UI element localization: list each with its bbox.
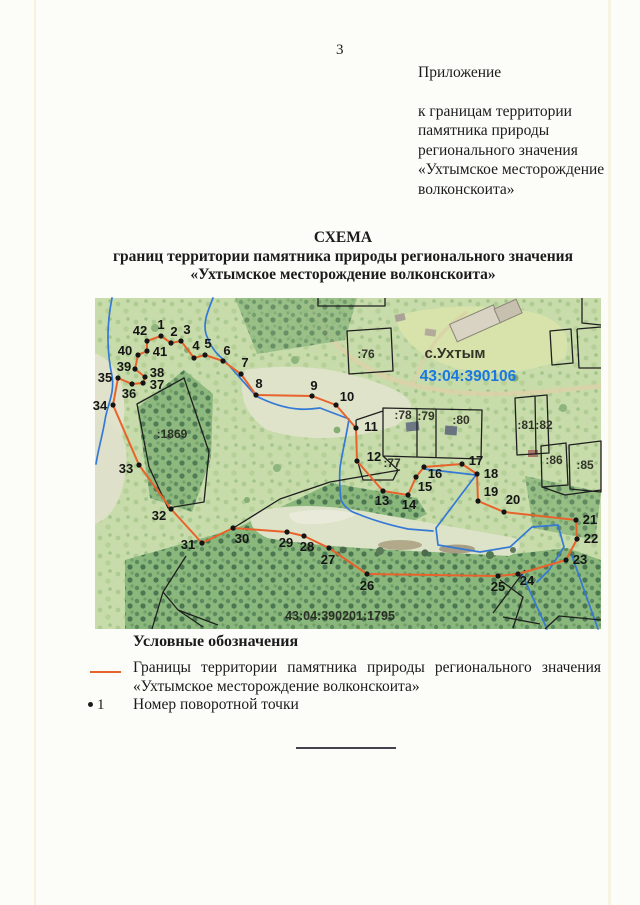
point-dot-icon bbox=[88, 702, 93, 707]
turning-point-dot bbox=[199, 540, 204, 545]
turning-point-number: 16 bbox=[428, 466, 442, 481]
document-page: 3 Приложение к границам территории памят… bbox=[0, 0, 640, 905]
turning-point-dot bbox=[501, 509, 506, 514]
turning-point-dot bbox=[110, 402, 115, 407]
turning-point-number: 29 bbox=[279, 535, 293, 550]
turning-point-number: 34 bbox=[93, 398, 108, 413]
turning-point-number: 25 bbox=[491, 579, 505, 594]
turning-point-dot bbox=[563, 557, 568, 562]
turning-point-number: 12 bbox=[367, 449, 381, 464]
turning-point-number: 31 bbox=[181, 537, 195, 552]
turning-point-dot bbox=[115, 375, 120, 380]
legend-point-number: 1 bbox=[97, 697, 105, 713]
turning-point-number: 6 bbox=[223, 343, 230, 358]
turning-point-number: 26 bbox=[360, 578, 374, 593]
turning-point-number: 19 bbox=[484, 484, 498, 499]
map-label: 43:04:390106 bbox=[420, 368, 517, 385]
turning-point-dot bbox=[421, 464, 426, 469]
turning-point-dot bbox=[142, 374, 147, 379]
turning-point-dot bbox=[301, 533, 306, 538]
turning-point-number: 14 bbox=[402, 497, 417, 512]
map-label: :85 bbox=[576, 458, 594, 472]
turning-point-dot bbox=[168, 506, 173, 511]
map-label: :81 bbox=[517, 418, 535, 432]
turning-point-number: 15 bbox=[418, 479, 432, 494]
turning-point-number: 22 bbox=[584, 531, 598, 546]
map-svg: с.Ухтым43:04:390106:76:78:79:80:81:82:86… bbox=[95, 298, 601, 629]
turning-point-number: 36 bbox=[122, 386, 136, 401]
appendix-line: к границам территории bbox=[418, 102, 618, 121]
turning-point-number: 3 bbox=[183, 322, 190, 337]
turning-point-number: 41 bbox=[153, 344, 167, 359]
legend-boundary-line-swatch bbox=[90, 671, 121, 673]
turning-point-number: 10 bbox=[340, 389, 354, 404]
turning-point-dot bbox=[158, 333, 163, 338]
turning-point-dot bbox=[178, 338, 183, 343]
turning-point-number: 8 bbox=[255, 376, 262, 391]
turning-point-dot bbox=[354, 458, 359, 463]
map-label: :82 bbox=[535, 418, 553, 432]
map-label: :79 bbox=[417, 409, 435, 423]
appendix-line: волконскоита» bbox=[418, 180, 618, 199]
appendix-line: памятника природы bbox=[418, 121, 618, 140]
turning-point-dot bbox=[253, 392, 258, 397]
turning-point-dot bbox=[309, 393, 314, 398]
turning-point-number: 17 bbox=[469, 453, 483, 468]
map-label: :80 bbox=[452, 413, 470, 427]
turning-point-dot bbox=[284, 529, 289, 534]
turning-point-number: 28 bbox=[300, 539, 314, 554]
turning-point-dot bbox=[202, 352, 207, 357]
turning-point-number: 7 bbox=[241, 355, 248, 370]
map-label: :78 bbox=[394, 408, 412, 422]
turning-point-dot bbox=[168, 340, 173, 345]
map-label: :77 bbox=[383, 456, 401, 470]
turning-point-number: 21 bbox=[583, 512, 597, 527]
turning-point-number: 38 bbox=[150, 365, 164, 380]
turning-point-number: 40 bbox=[118, 343, 132, 358]
turning-point-dot bbox=[574, 536, 579, 541]
turning-point-dot bbox=[573, 517, 578, 522]
turning-point-dot bbox=[220, 358, 225, 363]
turning-point-number: 42 bbox=[133, 323, 147, 338]
turning-point-number: 5 bbox=[204, 336, 211, 351]
schema-title-line3: «Ухтымское месторождение волконскоита» bbox=[60, 266, 626, 285]
turning-point-dot bbox=[136, 462, 141, 467]
map-label: :86 bbox=[545, 453, 563, 467]
turning-point-dot bbox=[364, 571, 369, 576]
appendix-line: «Ухтымское месторождение bbox=[418, 160, 618, 179]
turning-point-number: 30 bbox=[235, 531, 249, 546]
legend-boundary-text-line2: «Ухтымское месторождение волконскоита» bbox=[133, 678, 601, 697]
turning-point-number: 1 bbox=[157, 317, 164, 332]
turning-point-dot bbox=[191, 355, 196, 360]
turning-point-number: 13 bbox=[375, 493, 389, 508]
turning-point-number: 20 bbox=[506, 492, 520, 507]
turning-point-number: 4 bbox=[192, 338, 200, 353]
turning-point-number: 32 bbox=[152, 508, 166, 523]
map-label: с.Ухтым bbox=[424, 345, 485, 362]
turning-point-number: 27 bbox=[321, 552, 335, 567]
turning-point-dot bbox=[144, 348, 149, 353]
turning-point-dot bbox=[495, 573, 500, 578]
appendix-title: Приложение bbox=[418, 64, 501, 82]
turning-point-dot bbox=[132, 366, 137, 371]
legend-header: Условные обозначения bbox=[133, 633, 298, 651]
turning-point-dot bbox=[230, 525, 235, 530]
legend-boundary-text-line1: Границы территории памятника природы рег… bbox=[133, 659, 601, 678]
turning-point-number: 23 bbox=[573, 552, 587, 567]
map: с.Ухтым43:04:390106:76:78:79:80:81:82:86… bbox=[95, 298, 601, 629]
turning-point-dot bbox=[475, 498, 480, 503]
legend-point-label: Номер поворотной точки bbox=[133, 696, 299, 714]
turning-point-dot bbox=[353, 425, 358, 430]
turning-point-number: 35 bbox=[98, 370, 112, 385]
turning-point-dot bbox=[144, 338, 149, 343]
turning-point-dot bbox=[326, 545, 331, 550]
map-label: :1869 bbox=[157, 427, 188, 441]
page-number: 3 bbox=[336, 42, 344, 59]
appendix-block: к границам территории памятника природы … bbox=[418, 102, 618, 199]
appendix-line: регионального значения bbox=[418, 141, 618, 160]
map-label: 43:04:390201:1795 bbox=[285, 609, 395, 623]
turning-point-number: 24 bbox=[520, 573, 535, 588]
turning-point-dot bbox=[238, 371, 243, 376]
turning-point-number: 2 bbox=[170, 324, 177, 339]
legend-boundary-item: Границы территории памятника природы рег… bbox=[133, 659, 601, 697]
schema-title-line1: СХЕМА bbox=[60, 229, 626, 248]
turning-point-dot bbox=[474, 471, 479, 476]
legend-point-symbol: 1 bbox=[88, 697, 105, 714]
scan-streak bbox=[34, 0, 36, 905]
turning-point-number: 33 bbox=[119, 461, 133, 476]
separator-rule bbox=[296, 747, 396, 749]
map-label: :76 bbox=[357, 347, 375, 361]
turning-point-number: 9 bbox=[310, 378, 317, 393]
schema-title: СХЕМА границ территории памятника природ… bbox=[60, 229, 626, 285]
turning-point-number: 18 bbox=[484, 466, 498, 481]
turning-point-number: 11 bbox=[364, 419, 378, 434]
turning-point-dot bbox=[459, 461, 464, 466]
turning-point-dot bbox=[333, 402, 338, 407]
turning-point-dot bbox=[135, 352, 140, 357]
turning-point-dot bbox=[140, 380, 145, 385]
turning-point-number: 39 bbox=[117, 359, 131, 374]
schema-title-line2: границ территории памятника природы реги… bbox=[60, 248, 626, 267]
